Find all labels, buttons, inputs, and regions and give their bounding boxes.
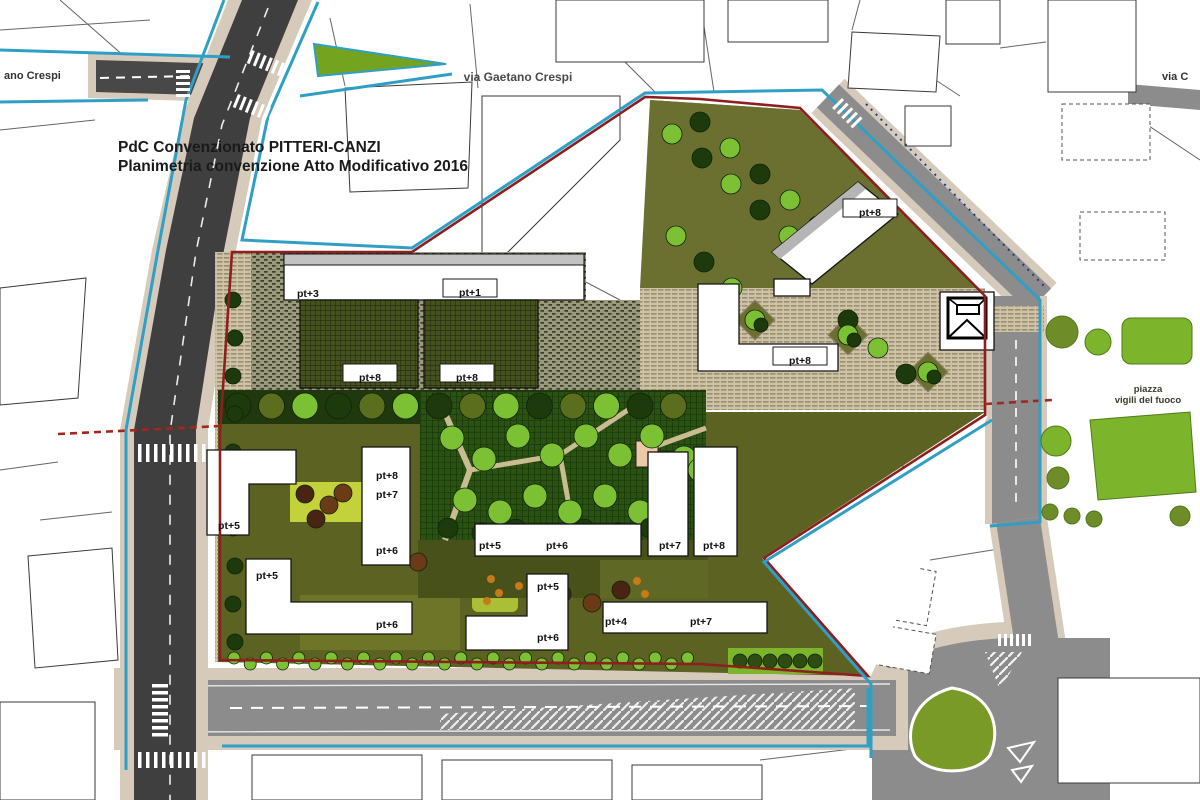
- building-label: pt+5: [537, 581, 559, 593]
- tree-icon: [440, 426, 464, 450]
- tree-icon: [259, 393, 285, 419]
- tree-icon: [661, 393, 687, 419]
- building-label: pt+6: [546, 540, 568, 552]
- tree-icon: [720, 138, 740, 158]
- crosswalk: [138, 444, 206, 462]
- tree-icon: [334, 484, 352, 502]
- tree-icon: [523, 484, 547, 508]
- building-label: pt+4: [605, 616, 627, 628]
- building-label: pt+8: [456, 372, 478, 384]
- street-label-via-right: via C: [1162, 71, 1188, 83]
- building-label: pt+6: [376, 619, 398, 631]
- building-label: pt+6: [376, 545, 398, 557]
- tree-icon: [682, 652, 694, 664]
- building-label: pt+8: [859, 207, 881, 219]
- tree-icon: [503, 658, 515, 670]
- tree-icon: [227, 406, 243, 422]
- tree-icon: [359, 393, 385, 419]
- tree-icon: [228, 652, 240, 664]
- shrub-icon: [515, 582, 523, 590]
- tree-icon: [927, 370, 941, 384]
- tree-icon: [493, 393, 519, 419]
- tree-icon: [692, 148, 712, 168]
- tree-icon: [506, 424, 530, 448]
- tree-icon: [540, 443, 564, 467]
- tree-icon: [227, 558, 243, 574]
- building-label: pt+8: [359, 372, 381, 384]
- tree-icon: [750, 164, 770, 184]
- shrub-icon: [633, 577, 641, 585]
- tree-icon: [608, 443, 632, 467]
- building-label: pt+8: [789, 355, 811, 367]
- tree-icon: [393, 393, 419, 419]
- street-label-via-gaetano-crespi: via Gaetano Crespi: [464, 70, 573, 84]
- right-road-crossing: [990, 306, 1044, 332]
- building-s-slab-c: [603, 602, 767, 633]
- tree-icon: [649, 652, 661, 664]
- tree-icon: [326, 393, 352, 419]
- shrub-icon: [487, 575, 495, 583]
- tree-icon: [260, 652, 272, 664]
- tree-icon: [307, 510, 325, 528]
- tree-icon: [453, 488, 477, 512]
- tree-icon: [292, 393, 318, 419]
- tree-icon: [583, 594, 601, 612]
- tree-icon: [426, 393, 452, 419]
- tree-icon: [296, 485, 314, 503]
- tree-icon: [612, 581, 630, 599]
- building-label: pt+3: [297, 288, 319, 300]
- tree-icon: [471, 658, 483, 670]
- street-label-crespi-left: ano Crespi: [4, 70, 61, 82]
- tree-icon: [593, 484, 617, 508]
- shrub-icon: [495, 589, 503, 597]
- tree-icon: [778, 654, 792, 668]
- tree-icon: [627, 393, 653, 419]
- tree-icon: [748, 654, 762, 668]
- tree-icon: [293, 652, 305, 664]
- piazza-label-line1: piazza: [1134, 384, 1163, 395]
- tree-icon: [488, 500, 512, 524]
- crosswalk: [138, 752, 206, 768]
- tree-icon: [793, 654, 807, 668]
- tree-icon: [227, 634, 243, 650]
- tree-icon: [763, 654, 777, 668]
- tree-icon: [896, 364, 916, 384]
- building-label: pt+7: [690, 616, 712, 628]
- tree-icon: [808, 654, 822, 668]
- tree-icon: [662, 124, 682, 144]
- tree-icon: [227, 330, 243, 346]
- tree-icon: [694, 252, 714, 272]
- electrical-substation-icon: [948, 298, 986, 338]
- tree-icon: [460, 393, 486, 419]
- building-label: pt+6: [537, 632, 559, 644]
- tree-icon: [666, 226, 686, 246]
- map-title-line1: PdC Convenzionato PITTERI-CANZI: [118, 139, 381, 156]
- tree-icon: [406, 658, 418, 670]
- piazza-label-line2: vigili del fuoco: [1115, 395, 1182, 406]
- building-label: pt+7: [659, 540, 681, 552]
- tree-icon: [721, 174, 741, 194]
- building-label: pt+7: [376, 489, 398, 501]
- building-label: pt+5: [256, 570, 278, 582]
- tree-icon: [438, 518, 458, 538]
- tree-icon: [560, 393, 586, 419]
- tree-icon: [574, 424, 598, 448]
- tree-icon: [409, 553, 427, 571]
- tree-icon: [640, 424, 664, 448]
- shrub-icon: [641, 590, 649, 598]
- building-label: pt+5: [479, 540, 501, 552]
- tree-icon: [750, 200, 770, 220]
- building-label: pt+8: [376, 470, 398, 482]
- tree-icon: [527, 393, 553, 419]
- building-label: pt+1: [459, 287, 481, 299]
- tree-icon: [594, 393, 620, 419]
- tree-icon: [320, 496, 338, 514]
- tree-icon: [754, 318, 768, 332]
- tree-icon: [225, 368, 241, 384]
- tree-icon: [439, 658, 451, 670]
- tree-icon: [690, 112, 710, 132]
- tree-icon: [847, 333, 861, 347]
- tree-icon: [868, 338, 888, 358]
- building-label: pt+8: [703, 540, 725, 552]
- planimetria-map: PdC Convenzionato PITTERI-CANZI Planimet…: [0, 0, 1200, 800]
- shrub-icon: [483, 597, 491, 605]
- tree-icon: [780, 190, 800, 210]
- tree-icon: [374, 658, 386, 670]
- building-label: pt+5: [218, 520, 240, 532]
- map-title-line2: Planimetria convenzione Atto Modificativ…: [118, 158, 468, 175]
- tree-icon: [225, 596, 241, 612]
- tree-icon: [472, 447, 496, 471]
